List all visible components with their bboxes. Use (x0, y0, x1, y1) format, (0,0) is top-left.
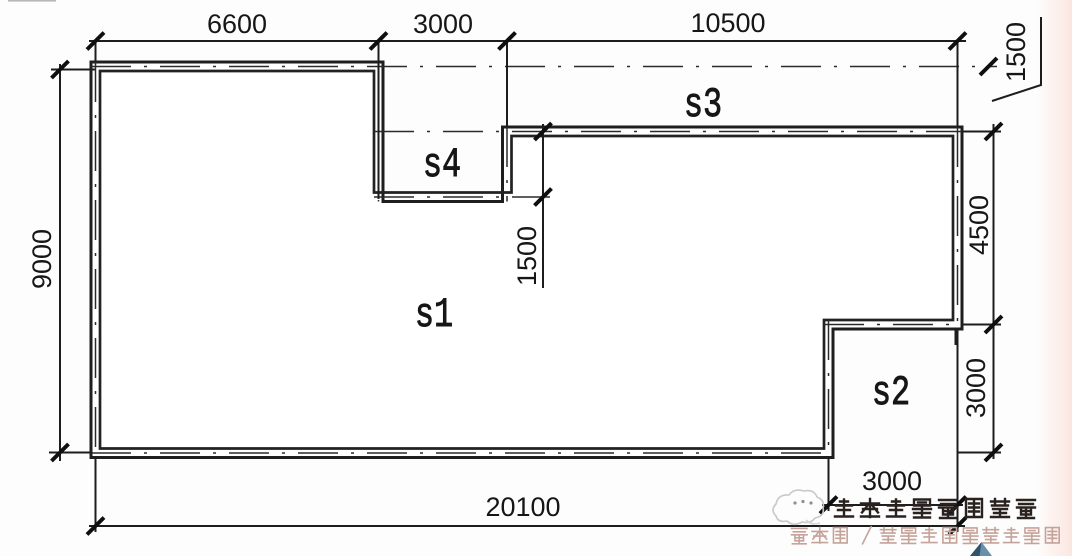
svg-text:3000: 3000 (862, 466, 922, 496)
svg-text:3000: 3000 (961, 358, 991, 418)
svg-text:s2: s2 (872, 370, 910, 417)
svg-text:9000: 9000 (27, 229, 57, 289)
svg-text:s1: s1 (415, 292, 453, 339)
svg-text:10500: 10500 (690, 8, 765, 38)
svg-text:3000: 3000 (413, 9, 473, 39)
svg-text:s3: s3 (684, 82, 722, 129)
svg-text:6600: 6600 (207, 9, 267, 39)
svg-text:s4: s4 (423, 142, 461, 189)
svg-text:1500: 1500 (512, 226, 542, 286)
svg-text:20100: 20100 (485, 492, 560, 522)
svg-text:4500: 4500 (964, 195, 994, 255)
svg-text:1500: 1500 (1001, 22, 1031, 82)
